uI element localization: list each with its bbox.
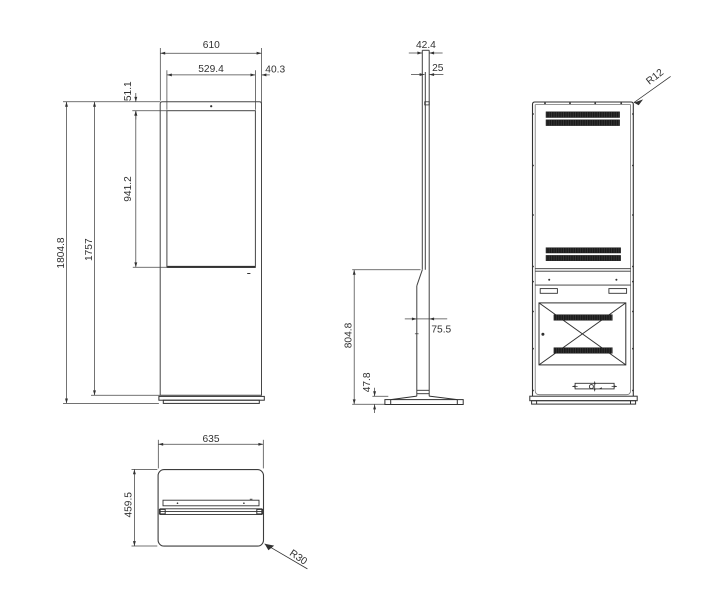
svg-text:635: 635 [203, 434, 220, 445]
svg-text:75.5: 75.5 [431, 324, 451, 335]
svg-text:804.8: 804.8 [344, 322, 355, 348]
svg-text:1757: 1757 [84, 238, 95, 261]
svg-text:610: 610 [203, 40, 220, 51]
svg-text:529.4: 529.4 [198, 64, 224, 75]
svg-text:941.2: 941.2 [123, 176, 134, 202]
svg-text:40.3: 40.3 [265, 64, 285, 75]
svg-text:459.5: 459.5 [123, 492, 134, 518]
svg-text:51.1: 51.1 [123, 81, 134, 101]
svg-text:25: 25 [432, 63, 444, 74]
svg-text:42.4: 42.4 [416, 40, 436, 51]
svg-text:47.8: 47.8 [362, 372, 373, 392]
svg-text:1804.8: 1804.8 [56, 237, 67, 268]
